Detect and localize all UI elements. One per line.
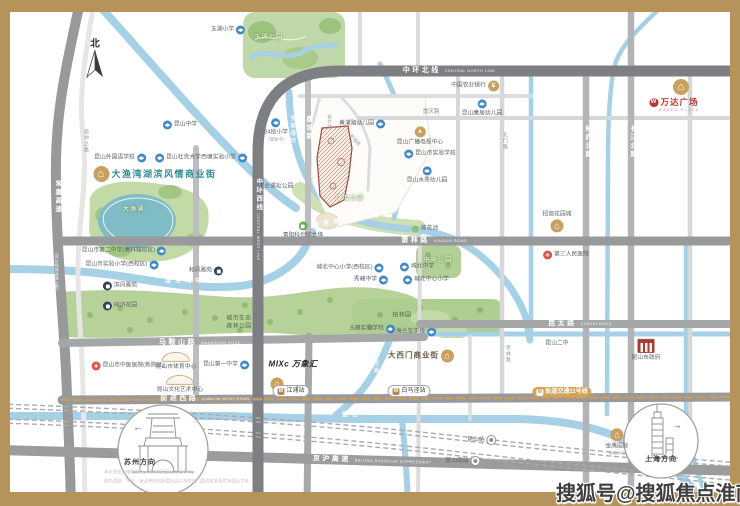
res-icon: [214, 267, 223, 276]
shop-gold-icon: [441, 350, 454, 363]
poi-cmsk-garden-city: 招商花园城: [543, 211, 572, 232]
park-yuhu: 玉湖公园: [254, 35, 283, 42]
poi-wanda-plaza: 万达广场: [649, 98, 698, 108]
poi-kunshan-no2-middle: 昆山二中: [545, 341, 568, 348]
station-jiangpu: 江浦站: [272, 385, 309, 397]
school-icon: [404, 150, 413, 159]
poi-agricultural-bank: 中国农业银行: [451, 81, 499, 92]
res-icon: [103, 302, 112, 311]
govt-icon: [638, 339, 655, 353]
poi-24class-primary: 24班小学(规划中): [264, 118, 288, 141]
school-icon: [240, 361, 249, 370]
direction-suzhou: 苏州方向: [124, 459, 156, 467]
park-icon: [412, 226, 419, 233]
road-tinglin: 亭林路: [504, 345, 510, 363]
poi-industrial-heritage-park: 工业遗址公园: [259, 184, 294, 191]
poi-mixc-logo: MIXc 万象汇: [269, 359, 318, 368]
road-chongqing: 重庆路: [423, 109, 440, 115]
train-icon: [471, 456, 481, 466]
poi-qingyang-tech-complex: 青阳科创综合体: [283, 221, 324, 238]
park-forest-line1: 城市生态: [226, 316, 251, 323]
road-zhonghuan-west-en: CENTRAL WEST LINE: [256, 213, 260, 261]
res-icon: [103, 282, 112, 291]
road-xiaolin: 萧林路XIAOLIN ROAD: [401, 237, 467, 245]
metro-icon: [277, 388, 284, 395]
school-icon: [155, 154, 164, 163]
poi-third-peoples-hospital: 第三人民医院: [543, 251, 589, 260]
park-guangdian: 广电公园: [335, 196, 364, 203]
map-canvas: 中环北线CENTRAL NORTH LINE中环西线CENTRAL WEST L…: [0, 0, 740, 506]
poi-chengbei-middle: 城北中学: [400, 263, 434, 272]
street-zizhu: 紫竹路: [327, 115, 332, 130]
label-layer: 中环北线CENTRAL NORTH LINE中环西线CENTRAL WEST L…: [0, 0, 740, 506]
poi-huangpu-kindergarten: 黄浦路幼儿园: [339, 120, 385, 129]
compass-north-label: 北: [90, 40, 100, 51]
poi-tongji-garden: 同济花园: [103, 302, 137, 311]
gold-lg-icon: [673, 79, 689, 95]
road-bailu-north: 柏庐北路: [583, 125, 590, 159]
poi-shuixiu-kindergarten: 昆山水秀幼儿园: [407, 166, 448, 183]
school-icon: [272, 118, 281, 127]
school-icon: [149, 261, 158, 270]
school-icon: [423, 166, 432, 175]
hospital-icon: [92, 362, 101, 371]
poi-kunshan-middle: 昆山中学: [163, 121, 197, 130]
green-icon: [299, 221, 308, 230]
poi-chengbei-central-primary-west: 城北中心小学(西校区): [316, 264, 383, 273]
poi-xitang-experimental-primary: 西塘实验小学: [201, 154, 247, 163]
school-icon: [157, 247, 166, 256]
disclaimer-line-1: 本示意图非精确测绘，仅作项目区位示意参考。: [104, 469, 196, 474]
school-icon: [238, 154, 247, 163]
building-sketch-icon: [166, 375, 194, 385]
poi-shanghai-lansheng-school: 上海兰生学校: [390, 328, 436, 337]
school-icon: [478, 99, 487, 108]
poi-foreign-language-school: 昆山外国语学校: [94, 154, 146, 163]
poi-broadcast-tv-center: 昆山广播电视中心: [397, 126, 443, 145]
school-icon: [375, 264, 384, 273]
poi-kunshan-experimental-school: 昆山市实验学校: [404, 150, 456, 159]
station-kunshan: 昆山站: [467, 435, 496, 445]
road-changjia-expressway: 常嘉高速: [53, 180, 60, 214]
train-icon: [487, 435, 497, 445]
disclaimer-line-2: 图中道路、学校、商业等规划配套信息以政府部门最终批复及实际建设为准。: [104, 478, 253, 483]
road-lucheng: 鹿城路: [304, 115, 311, 141]
road-kuntai: 昆太路KUNTAI ROAD: [548, 320, 612, 328]
poi-duke-kunshan-university: 昆山杜克大学: [155, 154, 201, 163]
school-icon: [137, 154, 146, 163]
poi-lotus-pond: 荷花池: [412, 226, 438, 233]
poi-wanda-plaza-en: WANDA PLAZA: [659, 108, 700, 112]
road-changjia-sub: (苏州绕城高速公路): [55, 253, 59, 291]
street-xincheng: 新城路: [349, 133, 362, 146]
river-loujiang: 娄江: [342, 413, 362, 420]
metro-icon: [392, 388, 399, 395]
road-zuchongzhi: 祖冲之路: [82, 129, 88, 153]
poi-kangju-kindergarten: 昆山康居幼儿园: [462, 99, 503, 116]
arrow-west: ←: [133, 422, 143, 434]
river-zhangjiagang: 张家港河: [289, 115, 295, 145]
road-qianjin-west: 前进西路QIANJIN WEST ROAD: [160, 395, 249, 403]
poi-no2-middle-xiaolin-campus: 昆山市第二中学(萧林路校区): [82, 247, 166, 256]
river-miaojing-waterway: 庙泾河中央水系: [165, 279, 235, 286]
poi-xiufeng-middle: 秀峰中学: [354, 276, 388, 285]
watermark: 搜狐号@搜狐焦点淮南站: [556, 477, 740, 506]
wanda-icon: [649, 98, 658, 107]
poi-tcm-hospital-new-campus: 昆山市中医医院(新院区): [92, 362, 165, 371]
shop-gold-icon: [610, 428, 623, 441]
bank-icon: [488, 81, 499, 92]
road-jinghu-expressway: 京沪高速BEIJING-SHANGHAI EXPRESSWAY: [313, 455, 432, 466]
poi-wanda-gold-icon: [673, 79, 689, 95]
poi-golden-eagle-mall: 金鹰国际购物中心: [605, 428, 628, 455]
tower-gold-icon: [414, 126, 425, 137]
school-icon: [403, 276, 412, 285]
arrow-east: →: [672, 420, 682, 432]
school-icon: [427, 328, 436, 337]
road-changjiang-north: 长江北路: [628, 125, 635, 159]
school-icon: [400, 263, 409, 272]
gold-lg-icon: [93, 166, 109, 182]
poi-yuhu-primary: 玉湖小学: [211, 26, 245, 35]
shop-gold-icon: [551, 220, 564, 233]
river-eco-corridor: 张家港河生态绿廊: [313, 210, 393, 229]
park-bolin: 柏林园: [393, 313, 412, 320]
poi-culture-art-center: 昆山文化艺术中心: [157, 375, 203, 393]
building-sketch-icon: [162, 352, 190, 362]
river-qingyanggang: 青阳港: [372, 353, 378, 376]
school-icon: [376, 120, 385, 129]
park-forest-line2: 森林公园: [226, 324, 251, 331]
poi-yufeng-experimental-school: 玉峰实验学校: [349, 325, 395, 334]
poi-binfeng-yayuan: 滨风雅苑: [103, 282, 137, 291]
poi-daximen-commercial-street: 大西门商业街: [388, 350, 454, 363]
poi-hefeng-yayuan: 和风雅苑: [189, 267, 223, 276]
station-kunshan-south: 昆山南站: [445, 456, 480, 466]
station-baimajing: 白马泾站: [387, 385, 430, 397]
poi-experimental-primary-west-campus: 昆山市实验小学(西校区): [86, 261, 159, 270]
metro-white-icon: [536, 389, 543, 396]
poi-no1-middle-school: 昆山第一中学: [203, 361, 249, 370]
lake-dayu: 大渔湖: [123, 207, 145, 214]
road-maanshan: 马鞍山路MAANSHAN ROAD: [159, 339, 241, 347]
road-beimen: 北门路: [501, 132, 507, 150]
poi-city-government: 昆山市政府: [632, 339, 661, 361]
direction-shanghai: 上海方向: [645, 456, 677, 464]
school-icon: [236, 26, 245, 35]
school-icon: [379, 276, 388, 285]
poi-sports-center: 昆山市体育中心: [156, 352, 197, 370]
school-icon: [163, 121, 172, 130]
title-dayuwan-street: 大渔湾湖滨风情商业街: [93, 166, 216, 182]
hospital-icon: [543, 251, 552, 260]
badge-metro-line-11: 轨道交通11号线: [532, 387, 591, 397]
poi-chengbei-central-primary: 城北中心小学: [403, 276, 449, 285]
road-zhonghuan-north: 中环北线CENTRAL NORTH LINE: [403, 67, 496, 75]
